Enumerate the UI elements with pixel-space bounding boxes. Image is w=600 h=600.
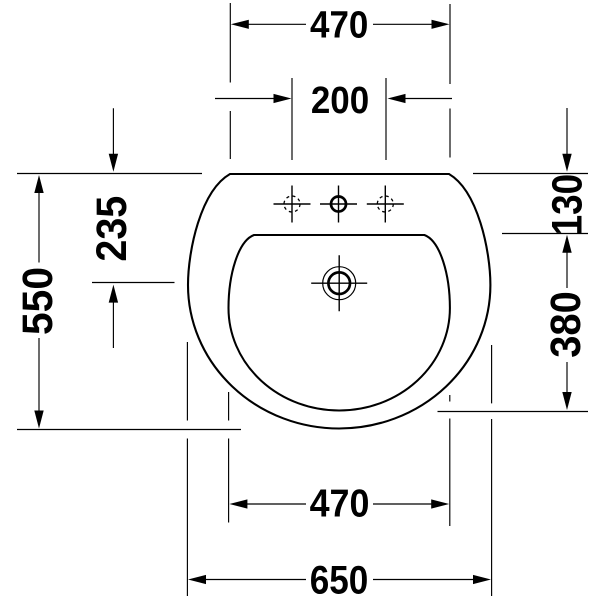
svg-text:550: 550 [13,267,61,335]
svg-text:470: 470 [310,481,370,525]
svg-text:200: 200 [311,78,369,121]
svg-text:235: 235 [87,196,135,262]
svg-text:380: 380 [542,291,590,358]
svg-text:470: 470 [310,3,368,46]
svg-text:650: 650 [310,557,369,600]
svg-text:130: 130 [544,174,591,236]
